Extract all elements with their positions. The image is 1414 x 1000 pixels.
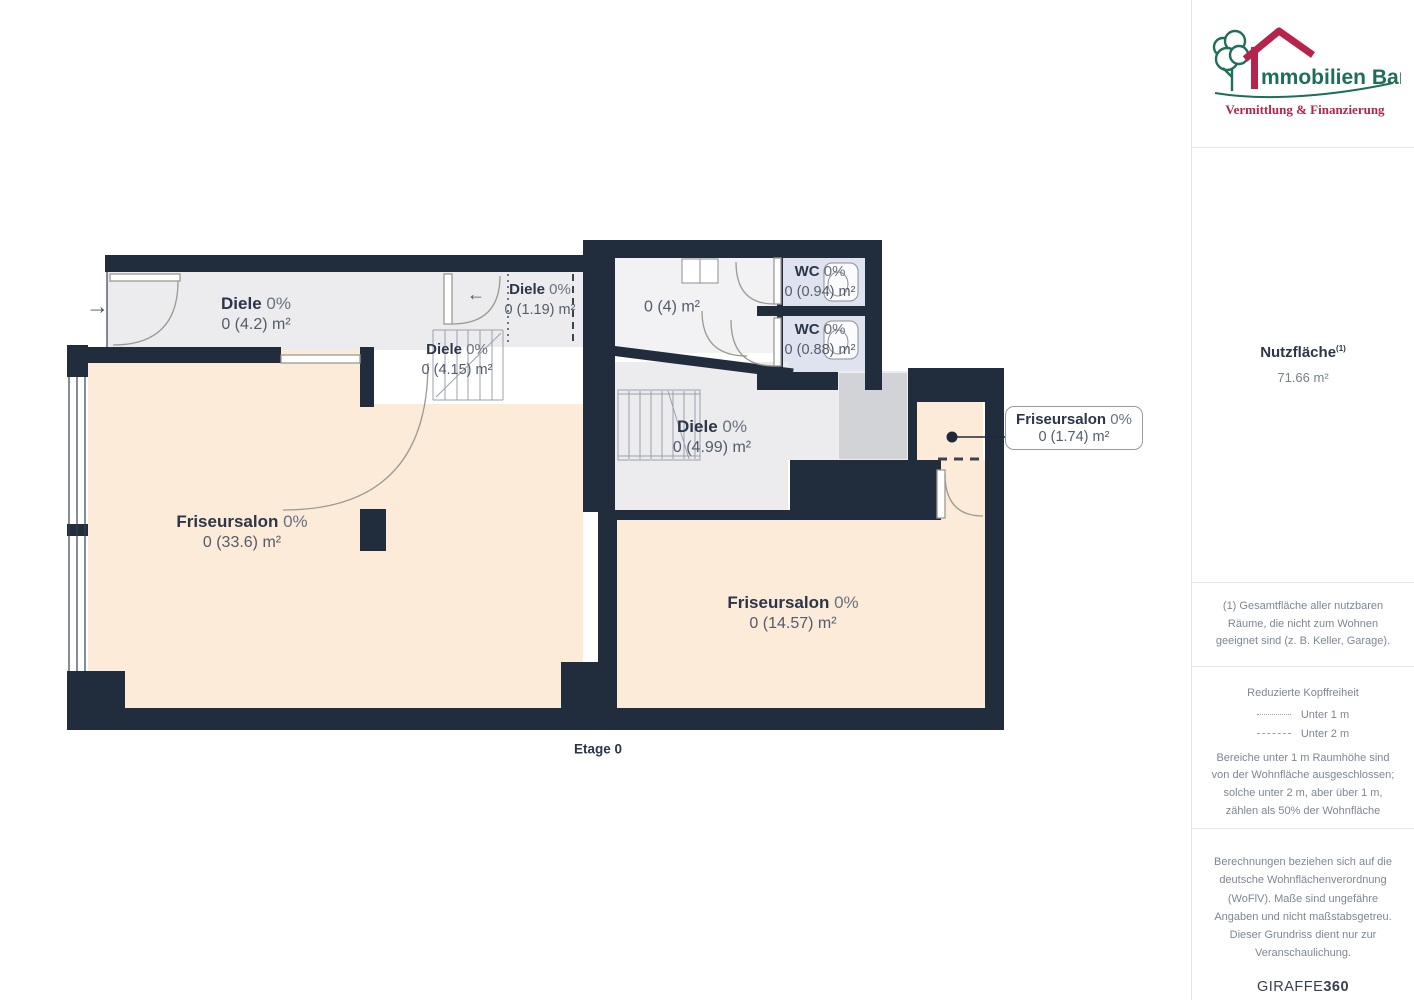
dashed-line-icon: [1257, 733, 1291, 734]
room-label-diele-415: Diele 0% 0 (4.15) m²: [422, 341, 493, 379]
legend-label: Unter 1 m: [1301, 709, 1349, 721]
tree-icon: [1214, 31, 1248, 91]
inner-door-arrow-icon: ←: [467, 284, 485, 305]
area-footnote-marker: (1): [1336, 344, 1346, 353]
room-label-wc-2: WC 0% 0 (0.88) m²: [785, 321, 856, 359]
page: Diele 0% 0 (4.2) m² Diele 0% 0 (1.19) m²…: [0, 0, 1414, 1000]
immobilien-bart-logo: mmobilien Bart Vermittlung & Finanzierun…: [1205, 17, 1401, 129]
room-callout-friseursalon-nook: Friseursalon 0% 0 (1.74) m²: [1005, 406, 1143, 450]
dotted-line-icon: [1257, 714, 1291, 715]
floor-plan-drawing: [0, 0, 1191, 1000]
footnote-section: (1) Gesamtfläche aller nutzbaren Räume, …: [1192, 583, 1414, 667]
room-label-diele-499: Diele 0% 0 (4.99) m²: [673, 416, 751, 458]
floor-friseursalon-nook: [917, 402, 983, 460]
sidebar: mmobilien Bart Vermittlung & Finanzierun…: [1191, 0, 1414, 1000]
room-label-4qm: 0 (4) m²: [644, 297, 700, 318]
room-label-diele-119: Diele 0% 0 (1.19) m²: [505, 281, 576, 319]
column: [360, 509, 386, 551]
entrance-arrow-icon: →: [86, 293, 109, 320]
legend-label: Unter 2 m: [1301, 728, 1349, 740]
legend-item-under-1m: Unter 1 m: [1210, 709, 1396, 721]
legend-section: Reduzierte Kopffreiheit Unter 1 m Unter …: [1192, 667, 1414, 830]
area-value: 71.66 m²: [1277, 370, 1328, 385]
area-title: Nutzfläche(1): [1260, 344, 1346, 361]
giraffe360-logo: GIRAFFE360: [1208, 976, 1398, 1000]
disclaimer-text: Berechnungen beziehen sich auf die deuts…: [1208, 853, 1398, 962]
entry-door-leaf: [110, 274, 180, 281]
floor-plan: Diele 0% 0 (4.2) m² Diele 0% 0 (1.19) m²…: [0, 0, 1191, 1000]
legend-title: Reduzierte Kopffreiheit: [1210, 687, 1396, 699]
footnote-text: (1) Gesamtfläche aller nutzbaren Räume, …: [1214, 598, 1392, 651]
disclaimer-section: Berechnungen beziehen sich auf die deuts…: [1192, 829, 1414, 1000]
room-label-friseursalon-right: Friseursalon 0% 0 (14.57) m²: [727, 592, 858, 634]
room-label-diele-42: Diele 0% 0 (4.2) m²: [221, 293, 291, 335]
legend-item-under-2m: Unter 2 m: [1210, 728, 1396, 740]
logo-section: mmobilien Bart Vermittlung & Finanzierun…: [1192, 0, 1414, 148]
area-summary-section: Nutzfläche(1) 71.66 m²: [1192, 148, 1414, 584]
logo-tagline: Vermittlung & Finanzierung: [1225, 102, 1385, 117]
legend-note: Bereiche unter 1 m Raumhöhe sind von der…: [1210, 750, 1396, 820]
room-label-wc-1: WC 0% 0 (0.94) m²: [785, 263, 856, 301]
floor-title: Etage 0: [574, 742, 622, 757]
room-label-friseursalon-left: Friseursalon 0% 0 (33.6) m²: [176, 511, 307, 553]
